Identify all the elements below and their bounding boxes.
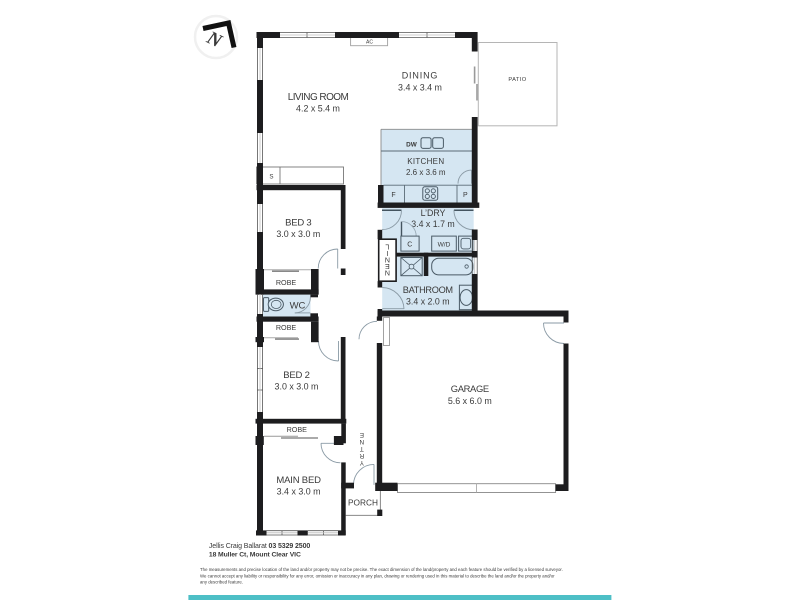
svg-text:MAIN BED: MAIN BED [276,475,321,486]
svg-text:4.2 x 5.4 m: 4.2 x 5.4 m [296,104,340,114]
svg-text:W/D: W/D [438,242,451,249]
svg-text:3.0 x 3.0 m: 3.0 x 3.0 m [275,381,319,391]
svg-text:5.6 x 6.0 m: 5.6 x 6.0 m [448,396,492,406]
svg-text:ROBE: ROBE [276,323,297,332]
svg-text:PORCH: PORCH [348,497,378,507]
svg-text:R: R [359,452,364,459]
svg-text:F: F [391,192,395,199]
svg-text:DINING: DINING [402,71,439,81]
svg-text:18 Muller Ct, Mount Clear VIC: 18 Muller Ct, Mount Clear VIC [209,551,301,558]
svg-text:N: N [359,438,364,445]
svg-text:The measurements and precise l: The measurements and precise location of… [200,567,563,572]
svg-text:3.4 x 3.0 m: 3.4 x 3.0 m [277,486,321,496]
svg-text:WC: WC [290,300,306,311]
svg-text:ROBE: ROBE [287,425,308,434]
svg-text:GARAGE: GARAGE [451,383,489,394]
svg-text:E: E [360,431,364,438]
svg-text:S: S [269,173,273,180]
svg-text:3.0 x 3.0 m: 3.0 x 3.0 m [276,229,320,239]
svg-text:BED 2: BED 2 [283,370,309,381]
svg-text:3.4 x 2.0 m: 3.4 x 2.0 m [406,296,450,306]
svg-text:Jellis Craig Ballarat 03 5329: Jellis Craig Ballarat 03 5329 2500 [209,543,310,550]
svg-text:N: N [385,268,390,277]
svg-text:T: T [360,445,364,452]
svg-text:Y: Y [359,459,364,466]
svg-text:BED 3: BED 3 [285,218,311,229]
svg-text:AC: AC [366,40,373,46]
svg-text:2.6 x 3.6 m: 2.6 x 3.6 m [406,168,446,177]
svg-text:ROBE: ROBE [276,278,297,287]
svg-text:KITCHEN: KITCHEN [407,157,444,166]
svg-text:any described feature.: any described feature. [200,580,243,585]
svg-text:L’DRY: L’DRY [421,208,446,218]
svg-text:We cannot accept any liability: We cannot accept any liability or respon… [200,573,555,578]
svg-text:C: C [407,242,412,249]
svg-text:BATHROOM: BATHROOM [403,285,453,295]
svg-text:3.4 x 1.7 m: 3.4 x 1.7 m [411,219,455,229]
svg-text:P: P [463,192,468,199]
svg-text:LIVING ROOM: LIVING ROOM [288,92,349,103]
svg-text:3.4 x 3.4 m: 3.4 x 3.4 m [398,83,442,93]
svg-text:DW: DW [406,142,418,149]
svg-text:PATIO: PATIO [508,77,526,83]
